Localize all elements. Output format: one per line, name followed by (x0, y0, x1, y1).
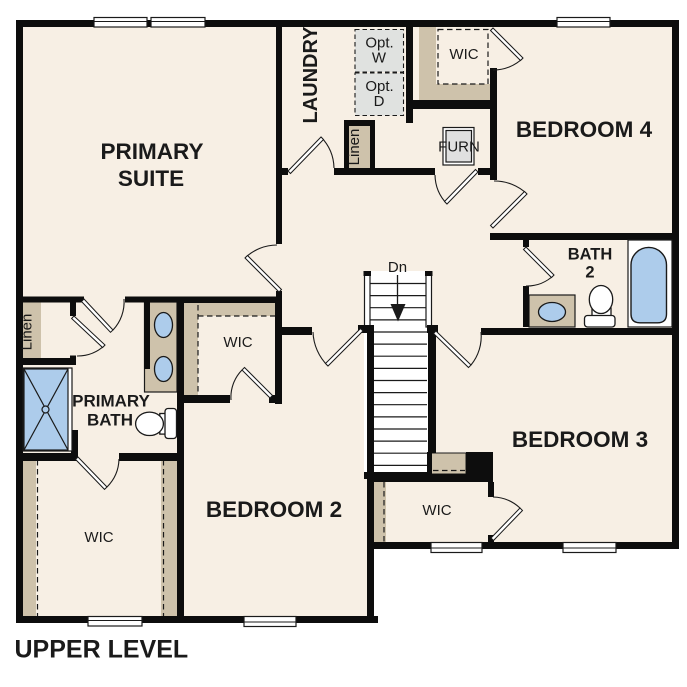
svg-text:WIC: WIC (84, 529, 113, 546)
svg-text:WIC: WIC (223, 334, 252, 351)
svg-text:2: 2 (585, 264, 594, 282)
svg-text:D: D (374, 93, 385, 110)
svg-text:PRIMARY: PRIMARY (101, 139, 204, 164)
svg-text:BEDROOM 4: BEDROOM 4 (516, 117, 653, 142)
svg-text:Dn: Dn (388, 259, 407, 276)
svg-text:BEDROOM 3: BEDROOM 3 (512, 427, 648, 452)
svg-text:BEDROOM 2: BEDROOM 2 (206, 497, 342, 522)
svg-text:PRIMARY: PRIMARY (72, 392, 150, 411)
svg-text:LAUNDRY: LAUNDRY (300, 26, 322, 124)
svg-text:W: W (372, 50, 387, 67)
svg-text:FURN: FURN (438, 139, 480, 156)
svg-text:UPPER LEVEL: UPPER LEVEL (15, 636, 189, 664)
svg-text:BATH: BATH (87, 411, 133, 430)
svg-text:WIC: WIC (449, 46, 478, 63)
svg-text:BATH: BATH (568, 246, 613, 264)
svg-text:Linen: Linen (19, 314, 36, 351)
svg-text:SUITE: SUITE (118, 166, 184, 191)
svg-text:Linen: Linen (346, 129, 363, 166)
svg-text:WIC: WIC (422, 502, 451, 519)
